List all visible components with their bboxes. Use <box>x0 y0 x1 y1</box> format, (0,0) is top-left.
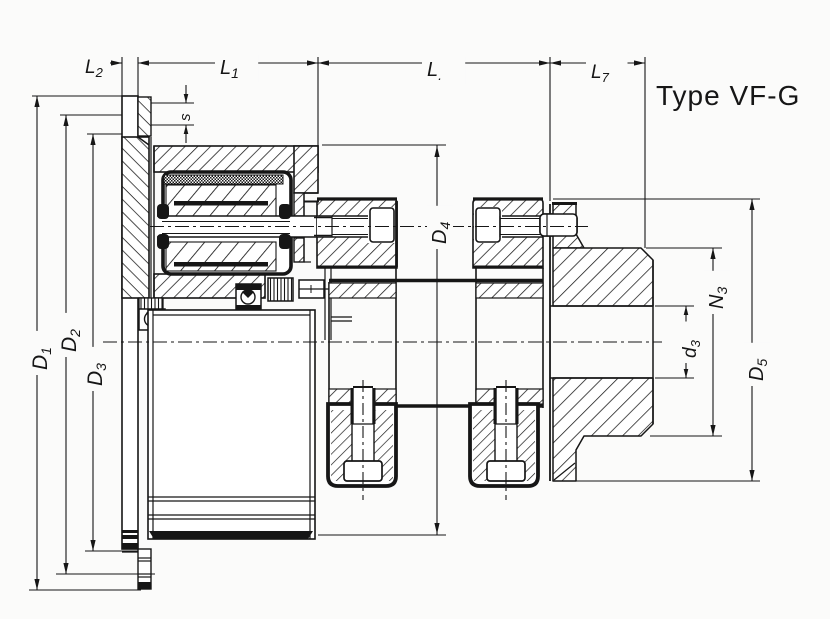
svg-text:Type VF-G: Type VF-G <box>656 80 800 111</box>
svg-text:s: s <box>177 113 194 121</box>
